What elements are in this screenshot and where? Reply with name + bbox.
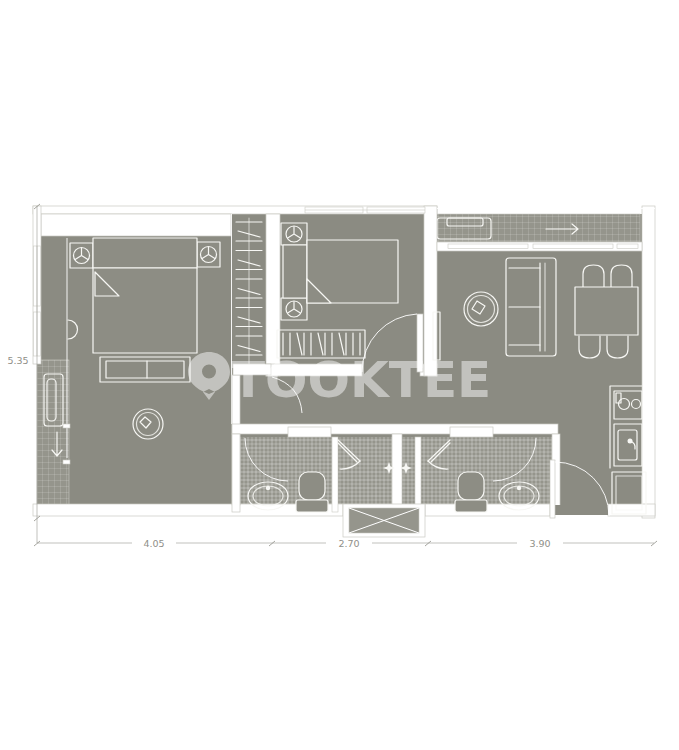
dimension-label: 4.05 [143,538,164,549]
left-balcony [26,360,69,511]
louver-left [26,368,35,451]
floorplan-page: 5.35 4.05 2.70 3.90 TOOKTEE [0,0,679,750]
toilet [296,472,328,512]
service-shaft [343,504,425,537]
single-bed [283,240,398,303]
dimension-label: 3.90 [529,538,550,549]
nightstand [70,243,93,268]
dimension-bottom: 4.05 2.70 3.90 [34,538,657,549]
dimension-label: 5.35 [7,355,28,366]
top-balcony [432,194,641,242]
double-bed [93,238,197,353]
nightstand [281,298,307,320]
nightstand [281,223,307,245]
toilet [455,472,487,512]
louver-top [432,194,491,208]
nightstand [197,242,220,267]
watermark-text: TOOKTEE [231,351,491,409]
sliding-door [437,242,642,251]
watermark: TOOKTEE [188,351,491,409]
dimension-label: 2.70 [338,538,359,549]
floor-plan: 5.35 4.05 2.70 3.90 TOOKTEE [0,0,679,750]
